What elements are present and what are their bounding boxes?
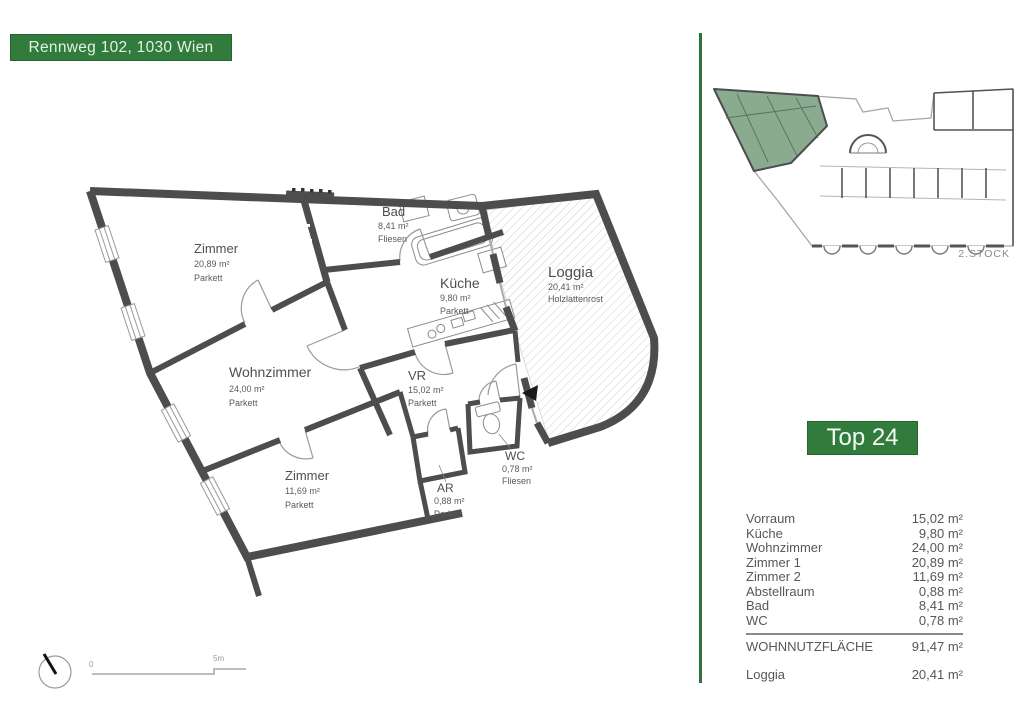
svg-text:Wohnzimmer: Wohnzimmer: [229, 364, 312, 380]
row-value: 0,88 m²: [919, 585, 963, 600]
svg-text:Parkett: Parkett: [408, 398, 437, 408]
room-label-zimmer-2: Zimmer 11,69 m² Parkett: [285, 468, 330, 510]
room-label-ar: AR 0,88 m² Parkett: [434, 481, 465, 519]
table-row: Wohnzimmer 24,00 m²: [746, 541, 963, 556]
svg-text:Bad: Bad: [382, 204, 405, 219]
floor-indicator: 2.STOCK: [958, 248, 1010, 260]
address-label: Rennweg 102, 1030 Wien: [29, 39, 214, 57]
svg-text:15,02 m²: 15,02 m²: [408, 385, 444, 395]
loggia-value: 20,41 m²: [912, 668, 963, 683]
svg-text:Parkett: Parkett: [440, 306, 469, 316]
table-row: Abstellraum 0,88 m²: [746, 585, 963, 600]
row-value: 0,78 m²: [919, 614, 963, 629]
address-badge: Rennweg 102, 1030 Wien: [10, 34, 232, 61]
row-label: WC: [746, 614, 768, 629]
svg-text:Loggia: Loggia: [548, 264, 594, 281]
main-apartment-plan: Zimmer 20,89 m² Parkett Wohnzimmer 24,00…: [90, 188, 654, 596]
svg-text:AR: AR: [437, 481, 454, 495]
svg-text:Fliesen: Fliesen: [502, 476, 531, 486]
building-overview-plan: 2.STOCK: [714, 89, 1013, 260]
scale-zero-label: 0: [89, 660, 94, 669]
row-label: Bad: [746, 599, 769, 614]
room-label-wc: WC 0,78 m² Fliesen: [502, 449, 533, 486]
svg-text:0,88 m²: 0,88 m²: [434, 496, 465, 506]
table-row: WC 0,78 m²: [746, 614, 963, 629]
svg-text:20,89 m²: 20,89 m²: [194, 259, 230, 269]
area-table: Vorraum 15,02 m² Küche 9,80 m² Wohnzimme…: [746, 512, 963, 682]
svg-text:Parkett: Parkett: [229, 398, 258, 408]
svg-text:Zimmer: Zimmer: [285, 468, 330, 483]
table-row: Vorraum 15,02 m²: [746, 512, 963, 527]
row-label: Vorraum: [746, 512, 795, 527]
row-value: 15,02 m²: [912, 512, 963, 527]
svg-text:Parkett: Parkett: [285, 500, 314, 510]
total-value: 91,47 m²: [912, 640, 963, 655]
table-divider: [746, 633, 963, 635]
svg-text:9,80 m²: 9,80 m²: [440, 293, 471, 303]
room-label-wohnzimmer: Wohnzimmer 24,00 m² Parkett: [229, 364, 312, 408]
loggia-label: Loggia: [746, 668, 785, 683]
floorplan-page: Zimmer 20,89 m² Parkett Wohnzimmer 24,00…: [0, 0, 1024, 724]
row-label: Zimmer 1: [746, 556, 801, 571]
total-label: WOHNNUTZFLÄCHE: [746, 640, 873, 655]
svg-text:Parkett: Parkett: [434, 509, 463, 519]
svg-text:Fliesen: Fliesen: [378, 234, 407, 244]
scale-5m-label: 5m: [213, 654, 224, 663]
row-label: Küche: [746, 527, 783, 542]
svg-text:Zimmer: Zimmer: [194, 241, 239, 256]
row-label: Abstellraum: [746, 585, 815, 600]
svg-text:11,69 m²: 11,69 m²: [285, 486, 320, 496]
toilet: [475, 402, 506, 437]
svg-text:Küche: Küche: [440, 275, 480, 291]
green-divider-line: [699, 33, 702, 683]
table-row: Zimmer 2 11,69 m²: [746, 570, 963, 585]
north-compass: [39, 654, 71, 688]
table-row: Zimmer 1 20,89 m²: [746, 556, 963, 571]
svg-text:Parkett: Parkett: [194, 273, 223, 283]
unit-badge: Top 24: [807, 421, 918, 455]
room-label-zimmer-1: Zimmer 20,89 m² Parkett: [194, 241, 239, 283]
svg-text:8,41 m²: 8,41 m²: [378, 221, 409, 231]
total-row: WOHNNUTZFLÄCHE 91,47 m²: [746, 640, 963, 655]
scale-bar: [92, 669, 246, 674]
unit-label: Top 24: [826, 424, 898, 452]
row-value: 9,80 m²: [919, 527, 963, 542]
room-label-bad: Bad 8,41 m² Fliesen: [378, 204, 409, 244]
row-label: Zimmer 2: [746, 570, 801, 585]
svg-text:WC: WC: [505, 449, 525, 463]
svg-text:VR: VR: [408, 368, 426, 383]
table-row: Bad 8,41 m²: [746, 599, 963, 614]
table-row: Küche 9,80 m²: [746, 527, 963, 542]
row-value: 24,00 m²: [912, 541, 963, 556]
svg-text:24,00 m²: 24,00 m²: [229, 384, 265, 394]
row-value: 20,89 m²: [912, 556, 963, 571]
row-value: 8,41 m²: [919, 599, 963, 614]
loggia-row: Loggia 20,41 m²: [746, 668, 963, 683]
row-label: Wohnzimmer: [746, 541, 822, 556]
svg-text:0,78 m²: 0,78 m²: [502, 464, 533, 474]
row-value: 11,69 m²: [913, 570, 963, 585]
svg-text:20,41 m²: 20,41 m²: [548, 282, 584, 292]
svg-text:Holzlattenrost: Holzlattenrost: [548, 294, 604, 304]
